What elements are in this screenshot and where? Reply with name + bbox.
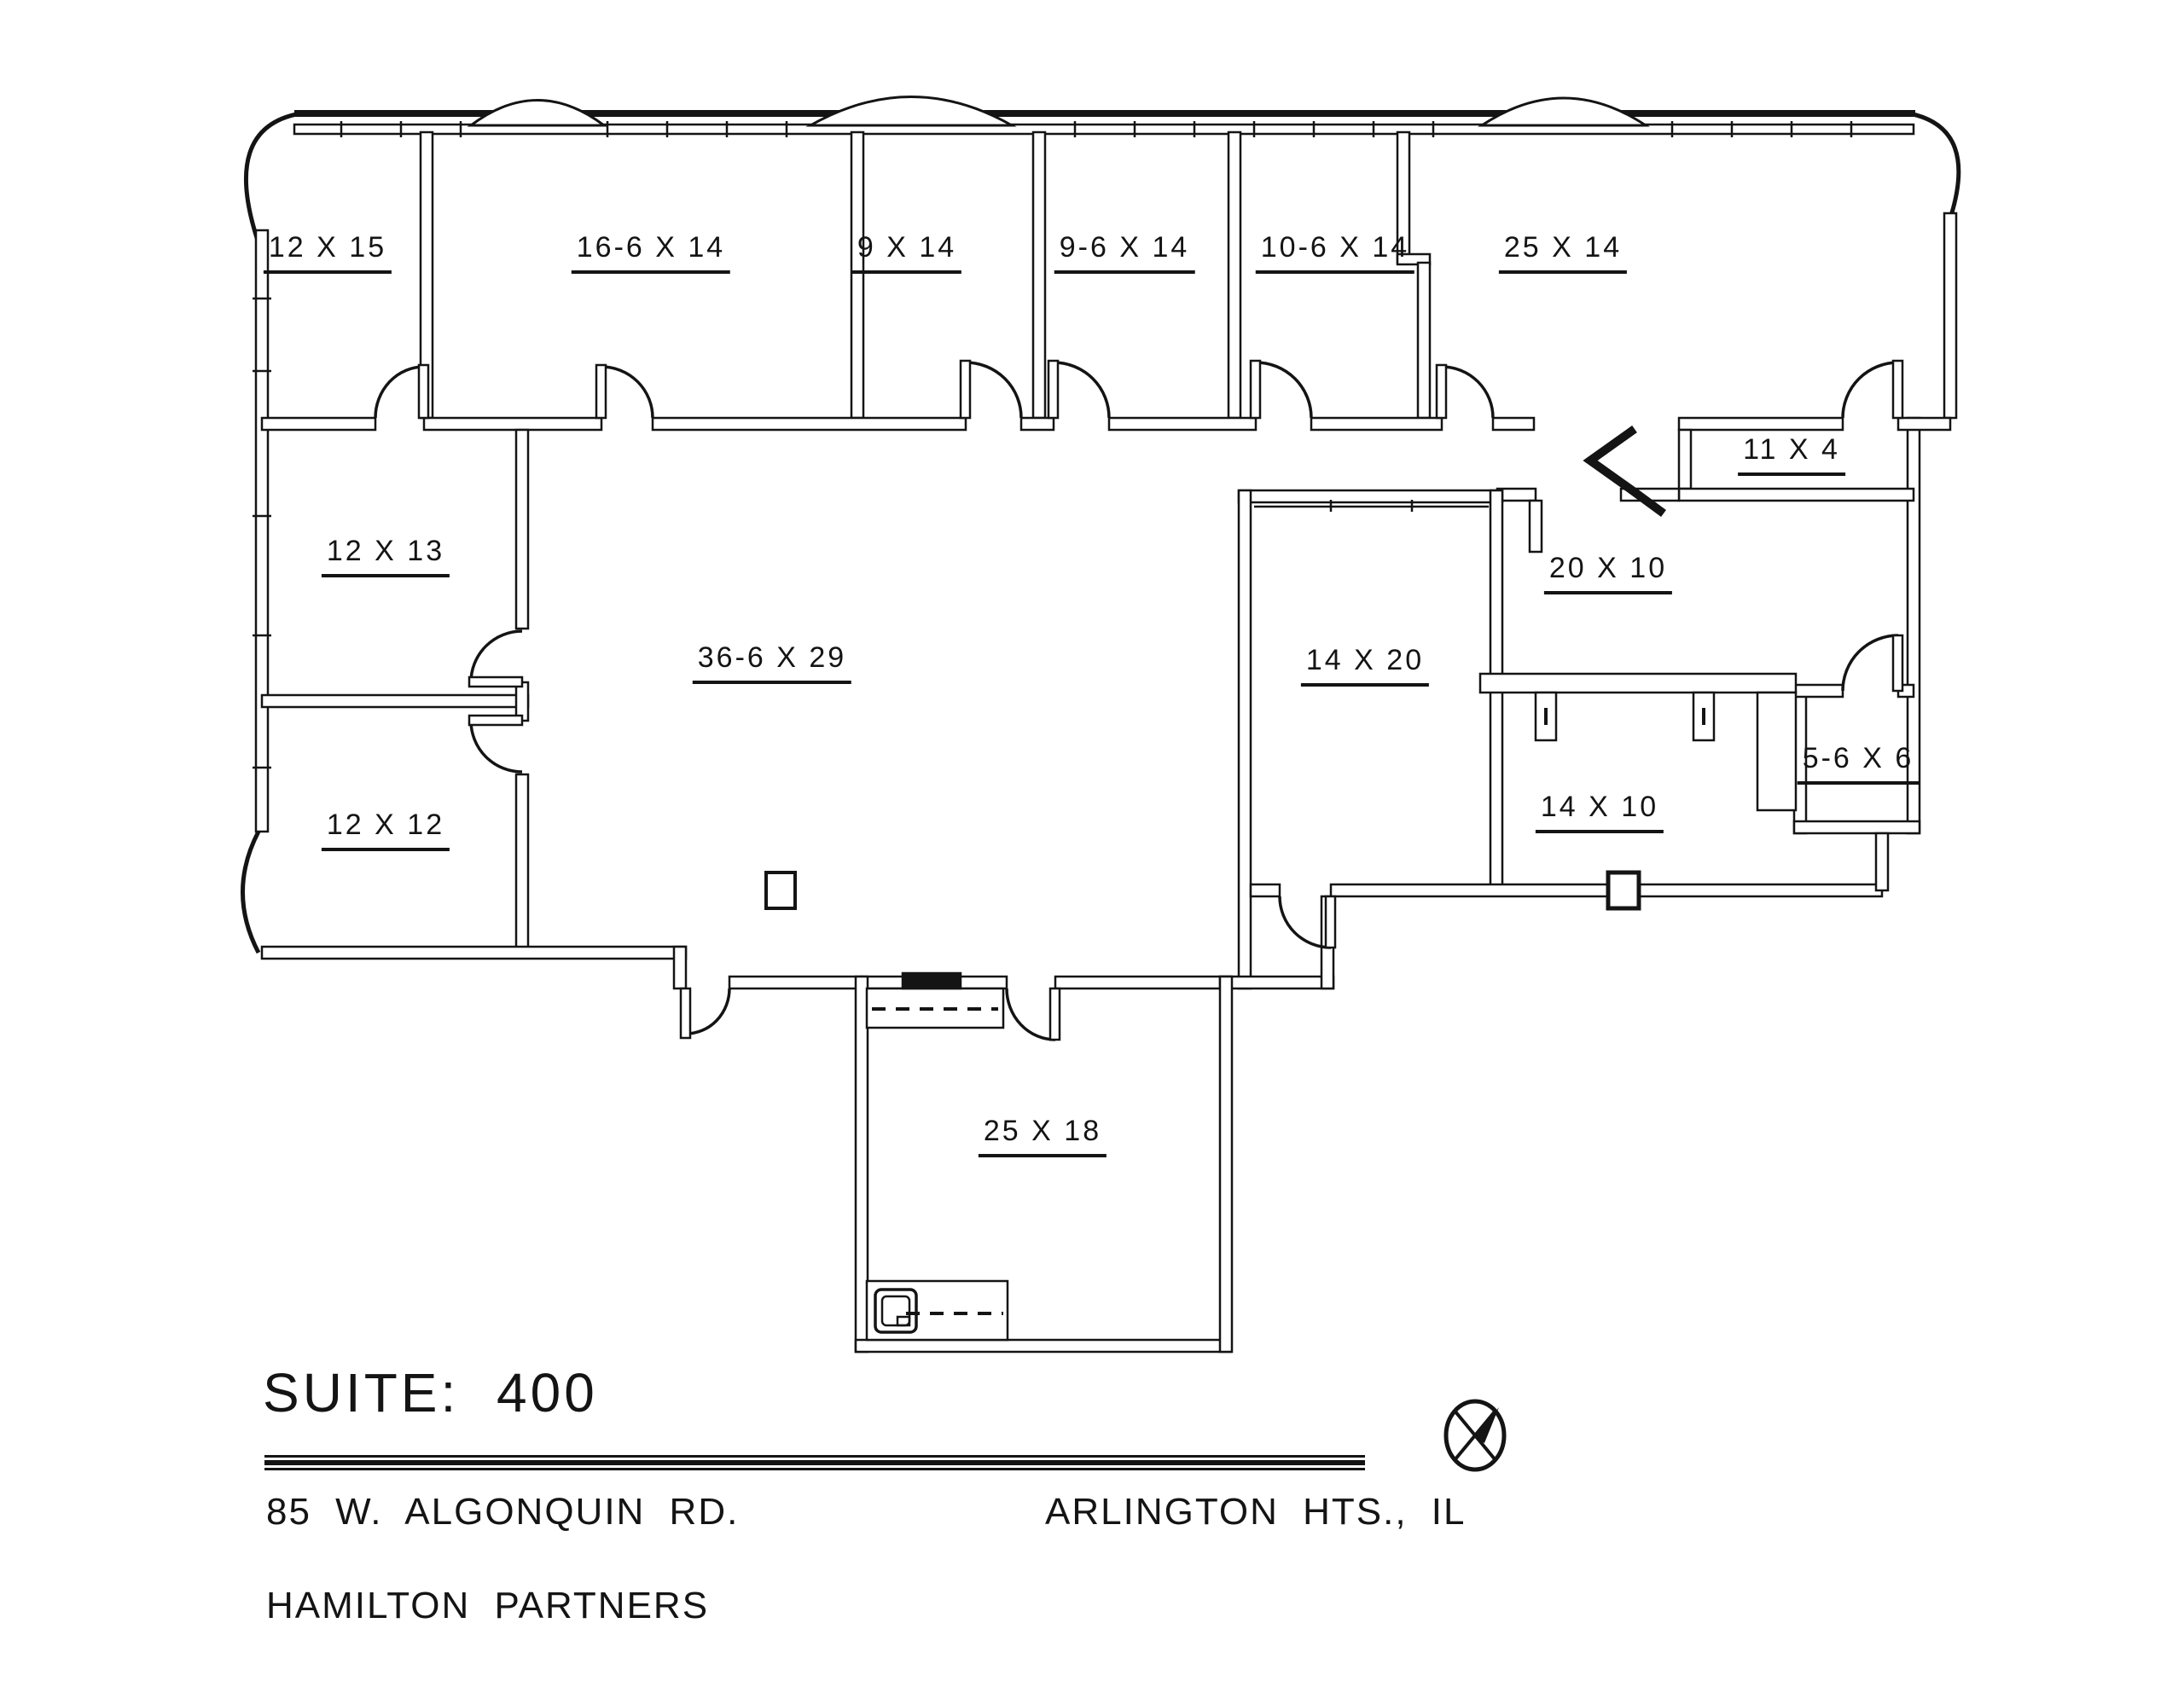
room-label-12x13: 12 X 13 xyxy=(322,535,450,577)
title-rule-bottom xyxy=(264,1468,1365,1470)
room-label-10-6x14: 10-6 X 14 xyxy=(1256,231,1414,274)
address-text: 85 W. ALGONQUIN RD. xyxy=(266,1491,739,1533)
room-label-12x12: 12 X 12 xyxy=(322,809,450,851)
suite-title: SUITE: 400 xyxy=(263,1361,598,1424)
casework xyxy=(867,674,1796,1340)
room-label-14x10: 14 X 10 xyxy=(1536,791,1664,833)
room-label-5-6x6: 5-6 X 6 xyxy=(1798,742,1920,785)
room-label-9x14: 9 X 14 xyxy=(852,231,961,274)
room-label-25x14: 25 X 14 xyxy=(1499,231,1627,274)
title-rule-mid xyxy=(264,1460,1365,1465)
door-swing-arcs xyxy=(375,362,1898,1040)
north-arrow-icon xyxy=(1446,1401,1504,1470)
company-text: HAMILTON PARTNERS xyxy=(266,1585,709,1627)
walls xyxy=(256,132,1956,1352)
room-label-25x18: 25 X 18 xyxy=(979,1115,1107,1157)
room-label-14x20: 14 X 20 xyxy=(1301,644,1429,687)
room-label-12x15: 12 X 15 xyxy=(264,231,392,274)
title-rule-top xyxy=(264,1455,1365,1458)
room-label-36-6x29: 36-6 X 29 xyxy=(693,641,851,684)
room-label-11x4: 11 X 4 xyxy=(1738,433,1845,476)
city-text: ARLINGTON HTS., IL xyxy=(1045,1491,1467,1533)
floorplan-sheet: 12 X 15 16-6 X 14 9 X 14 9-6 X 14 10-6 X… xyxy=(0,0,2184,1687)
room-label-9-6x14: 9-6 X 14 xyxy=(1054,231,1195,274)
room-label-16-6x14: 16-6 X 14 xyxy=(572,231,730,274)
room-label-20x10: 20 X 10 xyxy=(1544,552,1672,594)
